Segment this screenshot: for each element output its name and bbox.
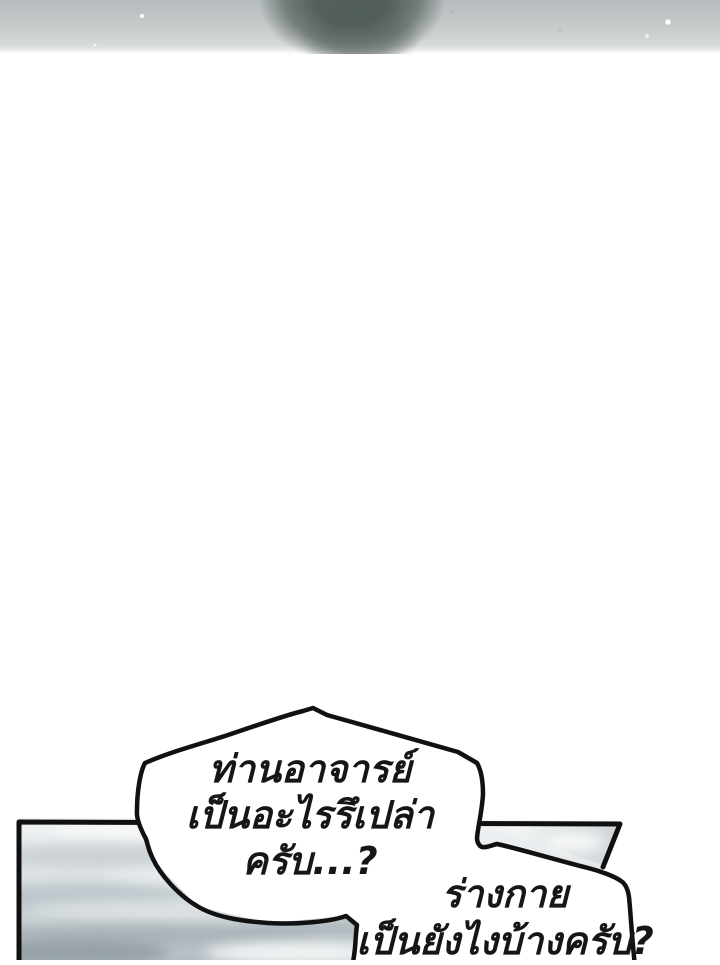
speech-bubble-1: ท่านอาจารย์ เป็นอะไรรึเปล่า ครับ...? <box>130 746 490 884</box>
bubble1-line-2: เป็นอะไรรึเปล่า <box>130 792 490 838</box>
bubble2-line-2: เป็นยังไงบ้างครับ? <box>352 918 658 965</box>
bubble1-line-1: ท่านอาจารย์ <box>130 746 490 792</box>
comic-page: ท่านอาจารย์ เป็นอะไรรึเปล่า ครับ...? ร่า… <box>0 0 720 960</box>
speech-bubble-2: ร่างกาย เป็นยังไงบ้างครับ? <box>352 871 658 965</box>
cloud-wisp <box>545 834 605 850</box>
bubble2-line-1: ร่างกาย <box>352 871 658 918</box>
